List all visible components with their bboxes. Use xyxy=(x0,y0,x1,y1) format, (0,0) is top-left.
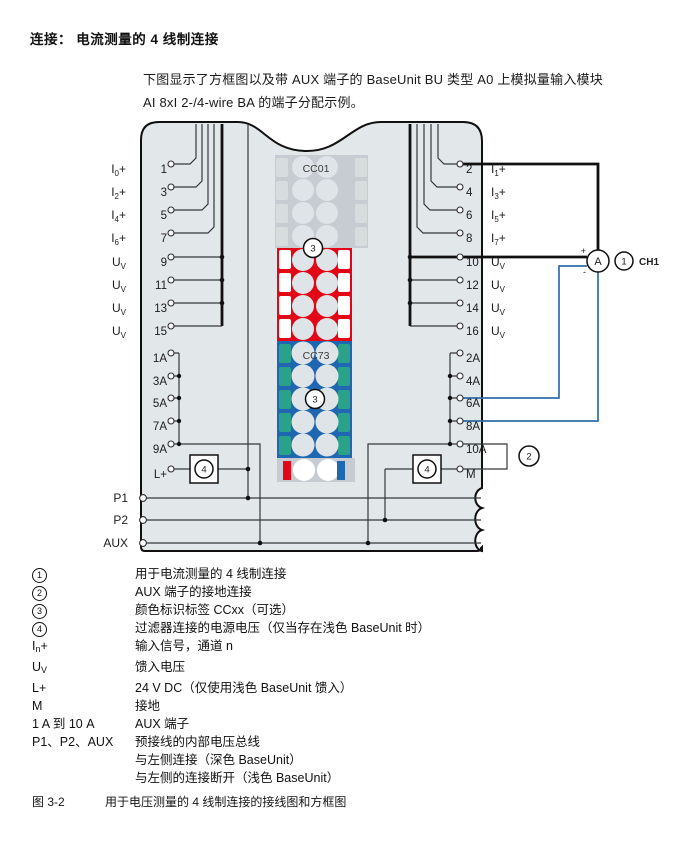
svg-text:UV: UV xyxy=(491,301,506,317)
legend-row: In+输入信号，通道 n xyxy=(32,637,430,658)
svg-text:8: 8 xyxy=(466,233,472,245)
legend-row: 1 A 到 10 AAUX 端子 xyxy=(32,715,430,733)
legend-description: AUX 端子 xyxy=(135,715,189,733)
svg-text:14: 14 xyxy=(466,303,479,315)
circled-number: 3 xyxy=(32,604,47,619)
svg-text:3A: 3A xyxy=(153,376,167,388)
bus-p2-connector xyxy=(140,517,147,524)
section-title: 连接： 电流测量的 4 线制连接 xyxy=(30,28,219,48)
legend-row: 1用于电流测量的 4 线制连接 xyxy=(32,565,430,583)
plus-sign: + xyxy=(581,246,586,256)
legend-symbol: M xyxy=(32,697,135,715)
svg-text:2A: 2A xyxy=(466,353,480,365)
svg-text:3: 3 xyxy=(161,187,167,199)
cc01-label-block: CC01 xyxy=(275,155,368,248)
svg-text:UV: UV xyxy=(491,278,506,294)
legend-symbol: P1、P2、AUX xyxy=(32,733,135,751)
legend-description: 接地 xyxy=(135,697,160,715)
svg-text:4: 4 xyxy=(201,465,206,476)
red-label-block xyxy=(277,248,352,341)
legend-row: UV馈入电压 xyxy=(32,658,430,679)
svg-text:AUX: AUX xyxy=(103,536,128,550)
badge-3-bottom: 3 xyxy=(306,390,325,409)
svg-text:7: 7 xyxy=(161,233,167,245)
legend-description: 馈入电压 xyxy=(135,658,185,676)
left-signal-labels: I0+ I2+ I4+ I6+ UV UV UV UV xyxy=(111,162,126,340)
svg-text:4: 4 xyxy=(424,465,429,476)
legend-symbol: 4 xyxy=(32,619,135,637)
svg-text:9: 9 xyxy=(161,257,167,269)
svg-text:P1: P1 xyxy=(113,491,128,505)
svg-text:I5+: I5+ xyxy=(491,208,506,224)
badge-3-top: 3 xyxy=(304,239,323,258)
svg-text:I6+: I6+ xyxy=(111,231,126,247)
svg-text:11: 11 xyxy=(155,280,167,292)
svg-text:8A: 8A xyxy=(466,421,480,433)
bus-p1-connector xyxy=(140,495,147,502)
svg-text:I2+: I2+ xyxy=(111,185,126,201)
badge-2: 2 xyxy=(519,446,539,466)
polarity-strip xyxy=(277,458,355,482)
filter-box-right: 4 xyxy=(413,455,441,483)
svg-text:10: 10 xyxy=(466,257,479,269)
svg-text:3: 3 xyxy=(310,244,315,255)
svg-text:I7+: I7+ xyxy=(491,231,506,247)
circled-number: 1 xyxy=(32,568,47,583)
badge-1-channel: 1 CH1 xyxy=(615,252,659,270)
channel-label: CH1 xyxy=(639,257,659,268)
svg-text:3: 3 xyxy=(312,395,317,406)
legend-symbol: 1 xyxy=(32,565,135,583)
svg-text:7A: 7A xyxy=(153,421,167,433)
legend-symbol: In+ xyxy=(32,637,135,658)
svg-text:9A: 9A xyxy=(153,444,167,456)
legend-description: 24 V DC（仅使用浅色 BaseUnit 馈入） xyxy=(135,679,352,697)
legend-description: 颜色标识标签 CCxx（可选） xyxy=(135,601,294,619)
legend-symbol: 3 xyxy=(32,601,135,619)
svg-text:1: 1 xyxy=(161,164,167,176)
svg-text:12: 12 xyxy=(466,280,479,292)
svg-text:I4+: I4+ xyxy=(111,208,126,224)
svg-text:P2: P2 xyxy=(113,513,128,527)
legend-row: M接地 xyxy=(32,697,430,715)
svg-text:6: 6 xyxy=(466,210,472,222)
figure-number: 图 3-2 xyxy=(32,793,105,810)
filter-box-left: 4 xyxy=(190,455,218,483)
svg-text:M: M xyxy=(466,469,476,481)
legend-description: 输入信号，通道 n xyxy=(135,637,233,655)
legend-description: 预接线的内部电压总线与左侧连接（深色 BaseUnit）与左侧的连接断开（浅色 … xyxy=(135,733,339,787)
legend-row: 4过滤器连接的电源电压（仅当存在浅色 BaseUnit 时） xyxy=(32,619,430,637)
legend-row: 2AUX 端子的接地连接 xyxy=(32,583,430,601)
svg-text:I0+: I0+ xyxy=(111,162,126,178)
legend: 1用于电流测量的 4 线制连接2AUX 端子的接地连接3颜色标识标签 CCxx（… xyxy=(32,565,430,787)
legend-description: AUX 端子的接地连接 xyxy=(135,583,252,601)
svg-text:L+: L+ xyxy=(154,469,167,481)
svg-text:5: 5 xyxy=(161,210,167,222)
svg-text:A: A xyxy=(594,256,602,268)
svg-text:2: 2 xyxy=(466,164,472,176)
figure-caption-text: 用于电压测量的 4 线制连接的接线图和方框图 xyxy=(105,793,346,810)
legend-symbol: UV xyxy=(32,658,135,679)
cc73-text: CC73 xyxy=(303,350,330,362)
legend-row: P1、P2、AUX预接线的内部电压总线与左侧连接（深色 BaseUnit）与左侧… xyxy=(32,733,430,787)
intro-paragraph-line1: 下图显示了方框图以及带 AUX 端子的 BaseUnit BU 类型 A0 上模… xyxy=(143,69,603,88)
legend-symbol: 1 A 到 10 A xyxy=(32,715,135,733)
svg-text:UV: UV xyxy=(491,324,506,340)
svg-text:5A: 5A xyxy=(153,398,167,410)
svg-text:16: 16 xyxy=(466,326,479,338)
svg-text:4: 4 xyxy=(466,187,473,199)
svg-text:15: 15 xyxy=(154,326,167,338)
ammeter: A + - xyxy=(581,246,609,277)
legend-symbol: L+ xyxy=(32,679,135,697)
svg-text:UV: UV xyxy=(112,324,127,340)
svg-text:UV: UV xyxy=(112,255,127,271)
legend-description: 过滤器连接的电源电压（仅当存在浅色 BaseUnit 时） xyxy=(135,619,430,637)
manual-page: 连接： 电流测量的 4 线制连接 下图显示了方框图以及带 AUX 端子的 Bas… xyxy=(0,0,694,847)
circled-number: 4 xyxy=(32,622,47,637)
svg-text:13: 13 xyxy=(154,303,167,315)
measure-loop-plus xyxy=(463,164,598,250)
bus-aux-connector xyxy=(140,540,147,547)
minus-sign: - xyxy=(583,267,586,277)
svg-text:UV: UV xyxy=(112,278,127,294)
legend-symbol: 2 xyxy=(32,583,135,601)
svg-text:4A: 4A xyxy=(466,376,480,388)
legend-row: L+24 V DC（仅使用浅色 BaseUnit 馈入） xyxy=(32,679,430,697)
svg-text:I3+: I3+ xyxy=(491,185,506,201)
svg-text:1: 1 xyxy=(621,257,626,268)
legend-row: 3颜色标识标签 CCxx（可选） xyxy=(32,601,430,619)
svg-text:6A: 6A xyxy=(466,398,480,410)
svg-text:1A: 1A xyxy=(153,353,167,365)
svg-text:UV: UV xyxy=(112,301,127,317)
wiring-diagram: CC01 xyxy=(0,106,694,568)
right-signal-labels: I1+ I3+ I5+ I7+ UV UV UV UV xyxy=(491,162,506,340)
cc01-text: CC01 xyxy=(303,163,330,175)
legend-description: 用于电流测量的 4 线制连接 xyxy=(135,565,286,583)
circled-number: 2 xyxy=(32,586,47,601)
figure-caption: 图 3-2 用于电压测量的 4 线制连接的接线图和方框图 xyxy=(32,793,346,810)
svg-text:I1+: I1+ xyxy=(491,162,506,178)
bus-labels: P1 P2 AUX xyxy=(103,491,128,550)
svg-text:10A: 10A xyxy=(466,444,487,456)
svg-text:2: 2 xyxy=(526,452,531,463)
